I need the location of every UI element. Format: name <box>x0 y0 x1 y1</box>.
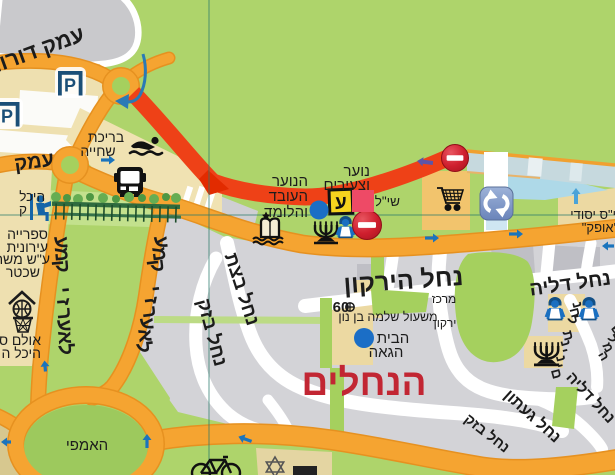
svg-text:P: P <box>1 107 13 127</box>
svg-text:משעול שלמה בן נון: משעול שלמה בן נון <box>338 310 437 324</box>
svg-text:ע: ע <box>335 192 347 213</box>
svg-text:העובד: העובד <box>269 188 308 205</box>
svg-text:מרכז: מרכז <box>432 292 456 306</box>
svg-text:ק: ק <box>50 259 73 274</box>
svg-text:ל: ל <box>54 343 77 356</box>
svg-text:P: P <box>64 76 76 96</box>
svg-text:שכטר: שכטר <box>6 264 40 280</box>
svg-text:שחייה: שחייה <box>80 143 115 159</box>
svg-text:היכל ה: היכל ה <box>2 345 41 361</box>
svg-text:וצעירים: וצעירים <box>324 177 370 194</box>
svg-text:ק: ק <box>145 258 168 274</box>
svg-text:הגאה: הגאה <box>369 344 404 361</box>
svg-text:האמפי: האמפי <box>66 437 108 454</box>
svg-text:הנחלים: הנחלים <box>301 362 426 403</box>
svg-text:שי"ל: שי"ל <box>375 194 400 209</box>
svg-text:ק: ק <box>19 202 27 217</box>
svg-text:ירקון: ירקון <box>434 316 457 330</box>
svg-text:והלומד: והלומד <box>264 204 308 221</box>
svg-text:"אופק": "אופק" <box>582 220 615 235</box>
svg-text:60: 60 <box>333 299 350 316</box>
